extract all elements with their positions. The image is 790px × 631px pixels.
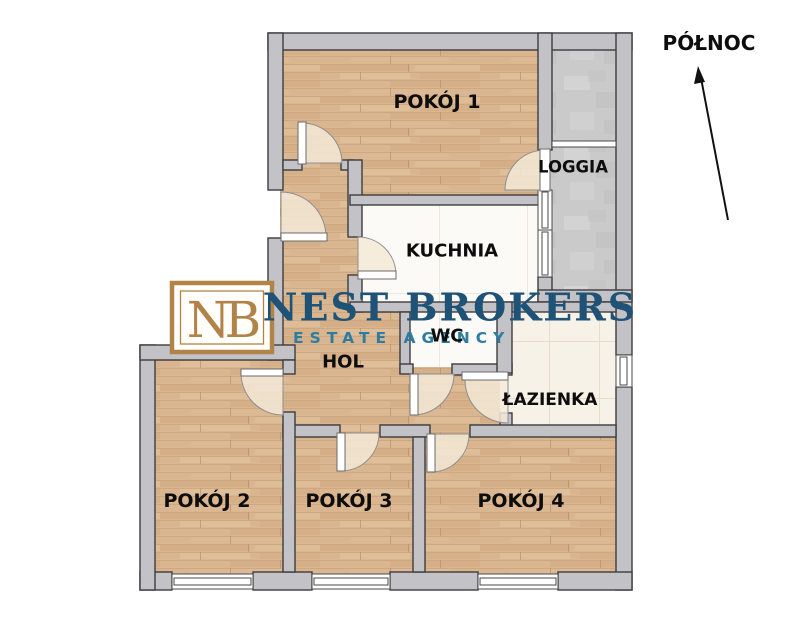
- wall-segment: [268, 33, 632, 50]
- room-label-pokoj1: POKÓJ 1: [393, 89, 480, 113]
- wall-segment: [283, 412, 295, 572]
- window-pokoj1-loggia: [538, 190, 552, 230]
- window-pokoj3: [312, 574, 390, 589]
- door-leaf-pokoj3: [337, 433, 345, 471]
- door-leaf-pokoj2: [241, 369, 283, 376]
- north-label: PÓŁNOC: [663, 31, 756, 55]
- window-pokoj2: [172, 574, 253, 589]
- door-leaf-entrance: [281, 233, 327, 241]
- room-label-lazienka: ŁAZIENKA: [502, 390, 599, 410]
- door-leaf-pokoj4: [427, 434, 435, 472]
- door-leaf-pokoj1: [298, 122, 306, 164]
- wall-segment: [400, 364, 413, 374]
- room-label-wc: WC: [430, 326, 463, 347]
- wall-segment: [283, 360, 295, 374]
- wall-segment: [140, 345, 155, 590]
- wall-segment: [268, 33, 283, 190]
- watermark-brand-name: NEST BROKERS: [263, 285, 637, 330]
- room-label-pokoj4: POKÓJ 4: [477, 488, 564, 512]
- window-lazienka: [616, 355, 632, 387]
- wall-segment: [253, 572, 312, 590]
- room-label-loggia: LOGGIA: [538, 158, 608, 177]
- loggia-divider: [552, 141, 616, 147]
- door-leaf-kuchnia: [358, 271, 396, 279]
- wall-segment: [616, 387, 632, 590]
- floor-plan-canvas: NB NEST BROKERS ESTATE AGENCY POKÓJ 1 LO…: [0, 0, 790, 631]
- watermark-monogram: NB: [187, 291, 259, 349]
- room-label-pokoj3: POKÓJ 3: [305, 488, 392, 512]
- north-arrow-icon: [694, 66, 705, 84]
- door-leaf-lazienka: [462, 372, 508, 380]
- watermark-tagline: ESTATE AGENCY: [293, 329, 510, 347]
- wall-segment: [350, 195, 542, 205]
- wall-segment: [380, 425, 430, 437]
- door-leaf-wc: [410, 374, 418, 415]
- room-label-hol: HOL: [322, 352, 364, 373]
- wall-segment: [413, 437, 425, 572]
- wall-segment: [390, 572, 478, 590]
- room-label-pokoj2: POKÓJ 2: [163, 488, 250, 512]
- floor-plan-page: NB NEST BROKERS ESTATE AGENCY POKÓJ 1 LO…: [0, 0, 790, 631]
- window-kuchnia-loggia: [538, 230, 552, 277]
- window-pokoj4: [478, 574, 558, 589]
- room-label-kuchnia: KUCHNIA: [406, 241, 498, 262]
- compass: PÓŁNOC: [663, 31, 756, 220]
- north-arrow-line: [701, 78, 728, 220]
- wall-segment: [558, 572, 632, 590]
- wall-segment: [470, 425, 616, 437]
- wall-segment: [538, 33, 552, 150]
